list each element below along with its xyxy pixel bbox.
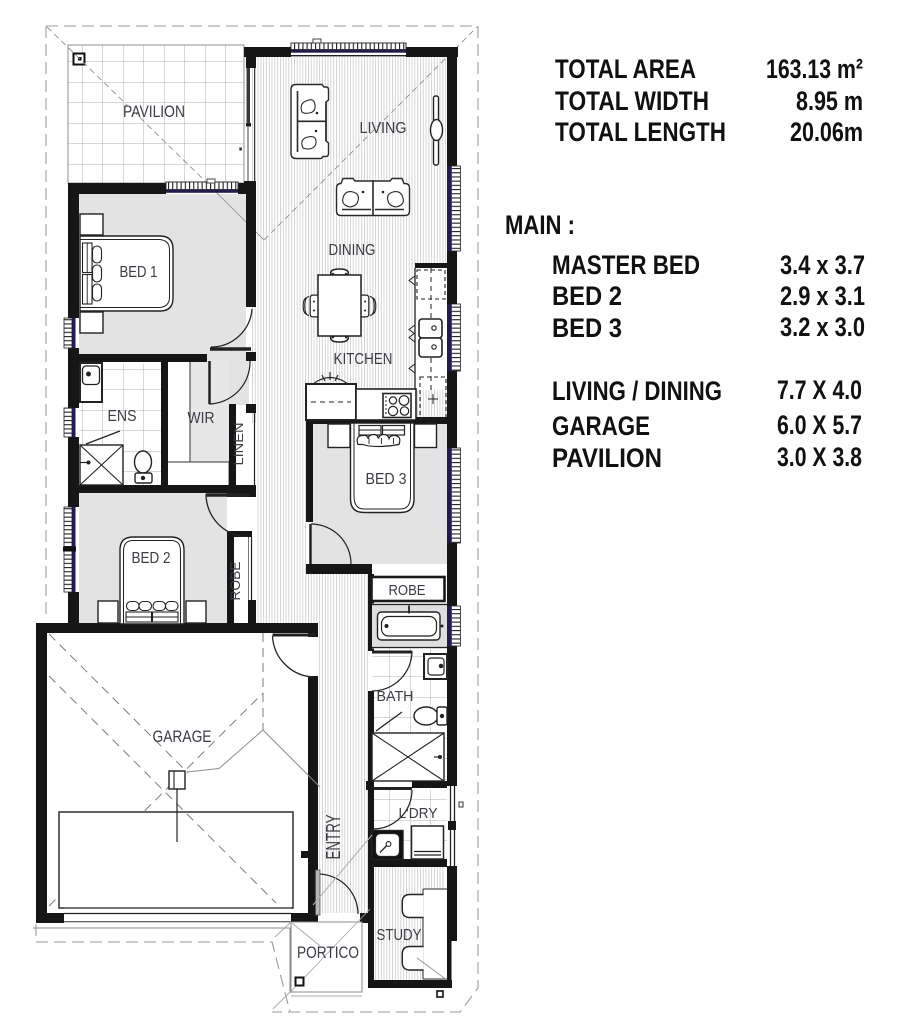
svg-text:MASTER BED: MASTER BED <box>552 250 700 280</box>
svg-text:MAIN :: MAIN : <box>505 210 575 240</box>
svg-text:6.0 X 5.7: 6.0 X 5.7 <box>777 410 862 440</box>
svg-text:BED 2: BED 2 <box>132 550 171 567</box>
svg-text:TOTAL LENGTH: TOTAL LENGTH <box>555 117 726 147</box>
svg-text:BED 2: BED 2 <box>552 281 622 311</box>
svg-text:STUDY: STUDY <box>377 927 422 944</box>
svg-text:BATH: BATH <box>377 688 414 705</box>
svg-text:3.0 X 3.8: 3.0 X 3.8 <box>777 442 862 472</box>
svg-text:8.95 m: 8.95 m <box>796 86 863 116</box>
svg-text:ROBE: ROBE <box>227 562 243 601</box>
svg-text:BED 3: BED 3 <box>552 313 622 343</box>
svg-text:L'DRY: L'DRY <box>399 805 438 822</box>
svg-text:WIR: WIR <box>188 410 215 427</box>
svg-text:PORTICO: PORTICO <box>297 943 359 962</box>
svg-text:LINEN: LINEN <box>231 423 246 466</box>
svg-text:DINING: DINING <box>329 242 376 259</box>
svg-text:3.2 x 3.0: 3.2 x 3.0 <box>780 312 865 342</box>
svg-text:2.9 x 3.1: 2.9 x 3.1 <box>780 281 865 311</box>
svg-text:BED 3: BED 3 <box>366 471 407 488</box>
svg-text:LIVING / DINING: LIVING / DINING <box>552 376 722 406</box>
svg-text:LIVING: LIVING <box>360 120 407 137</box>
svg-text:ENS: ENS <box>108 408 137 425</box>
svg-text:ROBE: ROBE <box>389 582 426 599</box>
svg-text:KITCHEN: KITCHEN <box>334 351 393 368</box>
svg-text:20.06m: 20.06m <box>790 117 863 147</box>
svg-text:ENTRY: ENTRY <box>323 815 345 860</box>
svg-text:TOTAL WIDTH: TOTAL WIDTH <box>555 86 709 116</box>
svg-text:3.4 x 3.7: 3.4 x 3.7 <box>780 250 865 280</box>
svg-text:BED 1: BED 1 <box>120 264 158 281</box>
svg-text:GARAGE: GARAGE <box>552 411 650 441</box>
svg-text:TOTAL AREA: TOTAL AREA <box>555 54 696 84</box>
svg-text:PAVILION: PAVILION <box>552 443 662 473</box>
svg-text:GARAGE: GARAGE <box>153 727 212 746</box>
svg-text:163.13 m²: 163.13 m² <box>766 54 863 84</box>
svg-text:7.7 X 4.0: 7.7 X 4.0 <box>777 375 862 405</box>
svg-text:PAVILION: PAVILION <box>123 102 185 121</box>
